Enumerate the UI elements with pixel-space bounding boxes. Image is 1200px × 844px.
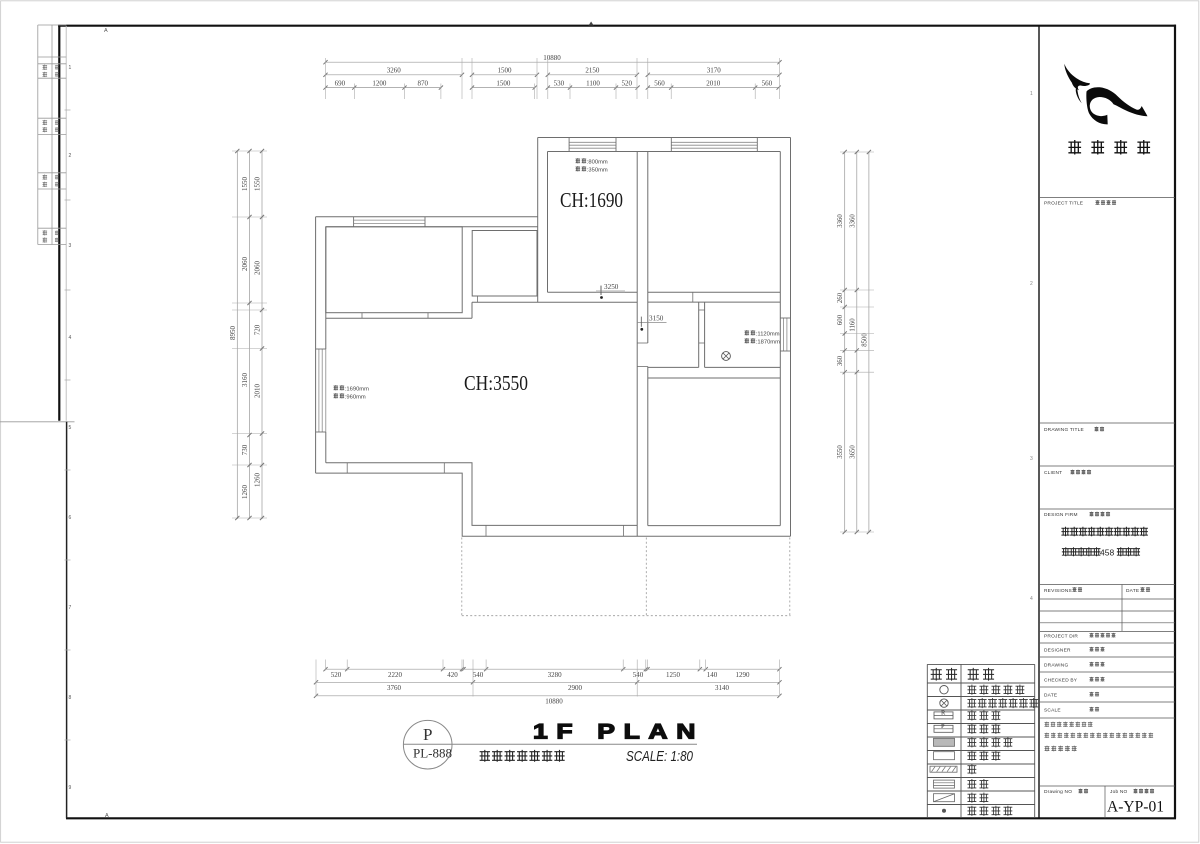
svg-text:4: 4 — [69, 335, 72, 341]
svg-text:Job NO: Job NO — [1110, 789, 1128, 795]
svg-text:1500: 1500 — [498, 67, 513, 75]
svg-text:DESIGNER: DESIGNER — [1044, 648, 1071, 654]
svg-text:REVISIONS: REVISIONS — [1044, 588, 1072, 594]
svg-text:2: 2 — [69, 153, 72, 159]
svg-text:DATE: DATE — [1126, 588, 1139, 594]
svg-text::960mm: :960mm — [345, 395, 366, 401]
svg-text:5: 5 — [69, 425, 72, 431]
svg-text:A: A — [105, 813, 109, 819]
svg-text:530: 530 — [554, 79, 565, 87]
svg-text:7: 7 — [69, 605, 72, 611]
svg-text:2: 2 — [1030, 281, 1033, 287]
svg-text:CHECKED BY: CHECKED BY — [1044, 678, 1078, 684]
svg-text:1550: 1550 — [254, 177, 262, 192]
svg-text::350mm: :350mm — [587, 168, 608, 174]
svg-text:A-YP-01: A-YP-01 — [1107, 799, 1164, 816]
svg-text:3280: 3280 — [548, 671, 563, 679]
svg-text:3250: 3250 — [604, 283, 619, 291]
svg-text:2900: 2900 — [568, 684, 583, 692]
svg-text:2220: 2220 — [388, 671, 403, 679]
svg-text:DATE: DATE — [1044, 693, 1057, 699]
svg-text:1200: 1200 — [372, 79, 387, 87]
svg-text:DRAWING: DRAWING — [1044, 663, 1068, 669]
svg-text:CH:1690: CH:1690 — [560, 188, 623, 212]
svg-text:870: 870 — [417, 79, 428, 87]
svg-text:6: 6 — [69, 515, 72, 521]
svg-text:540: 540 — [473, 671, 484, 679]
svg-text:3760: 3760 — [387, 684, 402, 692]
svg-text:600: 600 — [837, 314, 844, 325]
svg-text:3360: 3360 — [849, 214, 856, 228]
svg-text:1: 1 — [69, 65, 72, 71]
svg-text:3650: 3650 — [849, 445, 856, 459]
svg-text:720: 720 — [254, 324, 262, 335]
svg-text:260: 260 — [837, 292, 844, 303]
svg-text:3550: 3550 — [837, 445, 844, 459]
svg-text:2060: 2060 — [254, 261, 262, 276]
svg-text:3160: 3160 — [241, 373, 249, 388]
svg-text:2060: 2060 — [241, 257, 249, 272]
svg-text::1690mm: :1690mm — [345, 387, 369, 393]
svg-text:2010: 2010 — [706, 79, 721, 87]
svg-text:1250: 1250 — [666, 671, 681, 679]
svg-text:690: 690 — [335, 79, 346, 87]
svg-text:DESIGN FIRM: DESIGN FIRM — [1044, 512, 1078, 518]
svg-text::800mm: :800mm — [587, 160, 608, 166]
svg-text:1500: 1500 — [496, 79, 511, 87]
svg-text:458: 458 — [1100, 548, 1114, 558]
svg-text:DRAWING TITLE: DRAWING TITLE — [1044, 427, 1084, 433]
svg-text::1120mm: :1120mm — [756, 332, 780, 338]
svg-text:PROJECT DIR: PROJECT DIR — [1044, 634, 1078, 640]
svg-text:540: 540 — [633, 671, 644, 679]
svg-text:1260: 1260 — [241, 485, 249, 500]
svg-text:CLIENT: CLIENT — [1044, 470, 1062, 476]
svg-text:730: 730 — [241, 444, 249, 455]
svg-text:3: 3 — [69, 243, 72, 249]
svg-text:4: 4 — [1030, 596, 1033, 602]
svg-text:PROJECT TITLE: PROJECT TITLE — [1044, 201, 1083, 207]
svg-text:PL-888: PL-888 — [413, 746, 452, 761]
svg-text:P: P — [423, 725, 432, 744]
svg-text:3140: 3140 — [715, 684, 730, 692]
svg-text:1F PLAN: 1F PLAN — [533, 720, 704, 744]
svg-text:1160: 1160 — [849, 318, 856, 332]
svg-text:420: 420 — [447, 671, 458, 679]
svg-text:R: R — [941, 709, 946, 716]
svg-text:A: A — [104, 28, 108, 34]
svg-text::1870mm: :1870mm — [756, 340, 780, 346]
svg-text:P: P — [941, 723, 945, 730]
svg-text:3360: 3360 — [837, 214, 844, 228]
svg-text:360: 360 — [837, 355, 844, 366]
svg-text:8500: 8500 — [861, 333, 868, 347]
svg-text:1260: 1260 — [254, 473, 262, 488]
svg-text:2010: 2010 — [254, 384, 262, 399]
svg-text:1550: 1550 — [241, 177, 249, 192]
svg-text:560: 560 — [762, 79, 773, 87]
svg-text:1290: 1290 — [736, 671, 751, 679]
svg-text:1: 1 — [1030, 91, 1033, 97]
svg-text:9: 9 — [69, 785, 72, 791]
svg-text:560: 560 — [654, 79, 665, 87]
svg-text:SCALE: 1:80: SCALE: 1:80 — [626, 748, 694, 765]
svg-text:3: 3 — [1030, 456, 1033, 462]
svg-text:10880: 10880 — [545, 698, 563, 706]
svg-text:3170: 3170 — [707, 67, 722, 75]
svg-text:Drawing NO: Drawing NO — [1044, 789, 1072, 795]
svg-text:140: 140 — [707, 671, 718, 679]
svg-text:1100: 1100 — [586, 79, 600, 87]
svg-text:2150: 2150 — [585, 67, 600, 75]
svg-text:8950: 8950 — [229, 326, 237, 341]
svg-text:SCALE: SCALE — [1044, 708, 1061, 714]
svg-text:520: 520 — [331, 671, 342, 679]
svg-text:3260: 3260 — [387, 67, 402, 75]
svg-text:520: 520 — [622, 79, 633, 87]
svg-text:10880: 10880 — [543, 54, 561, 62]
svg-text:CH:3550: CH:3550 — [464, 371, 528, 395]
svg-text:3150: 3150 — [649, 315, 664, 323]
svg-text:8: 8 — [69, 695, 72, 701]
